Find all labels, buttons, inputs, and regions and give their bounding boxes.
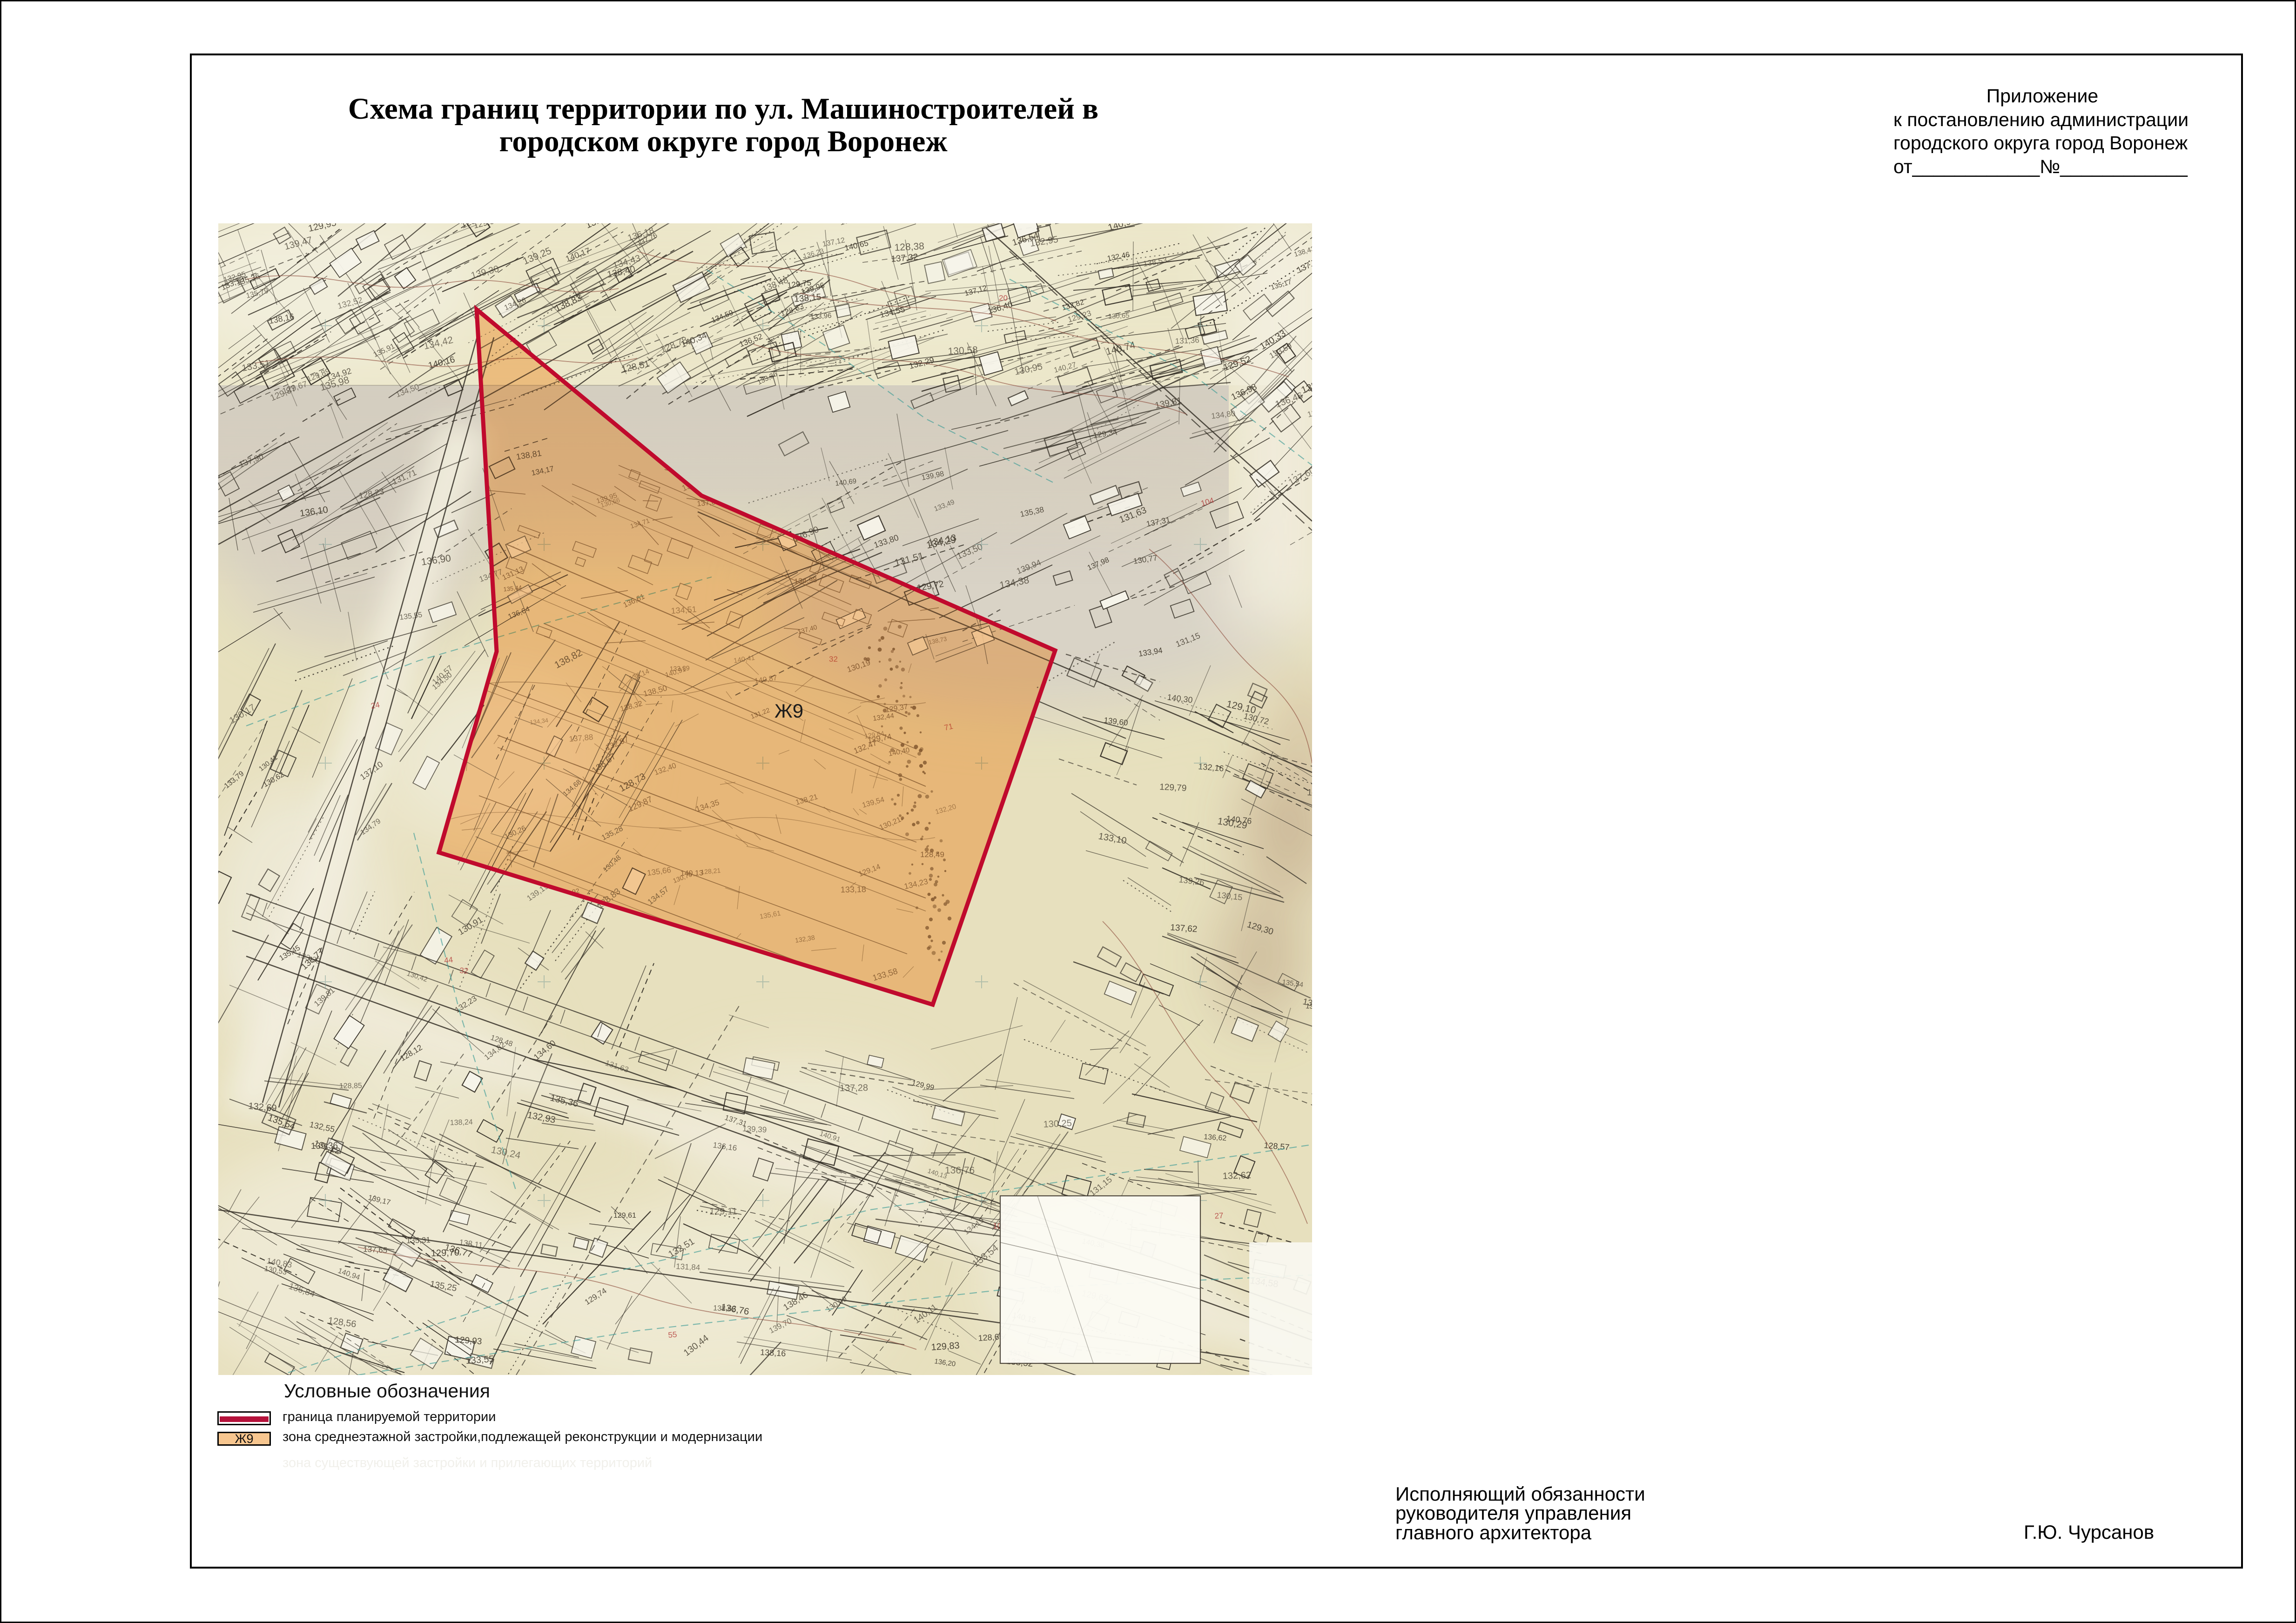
svg-text:138,24: 138,24 (450, 1118, 473, 1127)
svg-text:130,58: 130,58 (948, 345, 978, 357)
svg-text:131,84: 131,84 (676, 1262, 700, 1272)
svg-text:32: 32 (459, 966, 469, 975)
svg-text:137,28: 137,28 (840, 1083, 869, 1093)
svg-text:128,38: 128,38 (894, 241, 924, 253)
svg-text:55: 55 (668, 1330, 678, 1340)
svg-text:20: 20 (999, 294, 1008, 302)
svg-text:137,62: 137,62 (1170, 923, 1198, 934)
svg-text:138,16: 138,16 (760, 1348, 786, 1358)
svg-text:128,85: 128,85 (339, 1082, 362, 1090)
svg-text:44: 44 (444, 955, 453, 965)
svg-text:137,65: 137,65 (363, 1245, 388, 1255)
svg-text:27: 27 (1214, 1211, 1224, 1221)
svg-text:129,61: 129,61 (613, 1212, 636, 1220)
svg-text:129,11: 129,11 (709, 1207, 737, 1217)
svg-text:136,62: 136,62 (1204, 1133, 1227, 1142)
svg-text:Ж9: Ж9 (774, 700, 803, 722)
svg-text:24: 24 (370, 700, 380, 711)
svg-text:131,36: 131,36 (1175, 335, 1199, 346)
svg-text:133,62: 133,62 (1307, 788, 1312, 799)
svg-text:130,25: 130,25 (1043, 1118, 1072, 1130)
svg-text:132,62: 132,62 (1222, 1170, 1251, 1181)
svg-text:133,96: 133,96 (810, 312, 832, 321)
svg-text:129,79: 129,79 (1159, 782, 1187, 793)
svg-text:130,65: 130,65 (1108, 312, 1130, 321)
svg-text:129,83: 129,83 (931, 1341, 960, 1353)
